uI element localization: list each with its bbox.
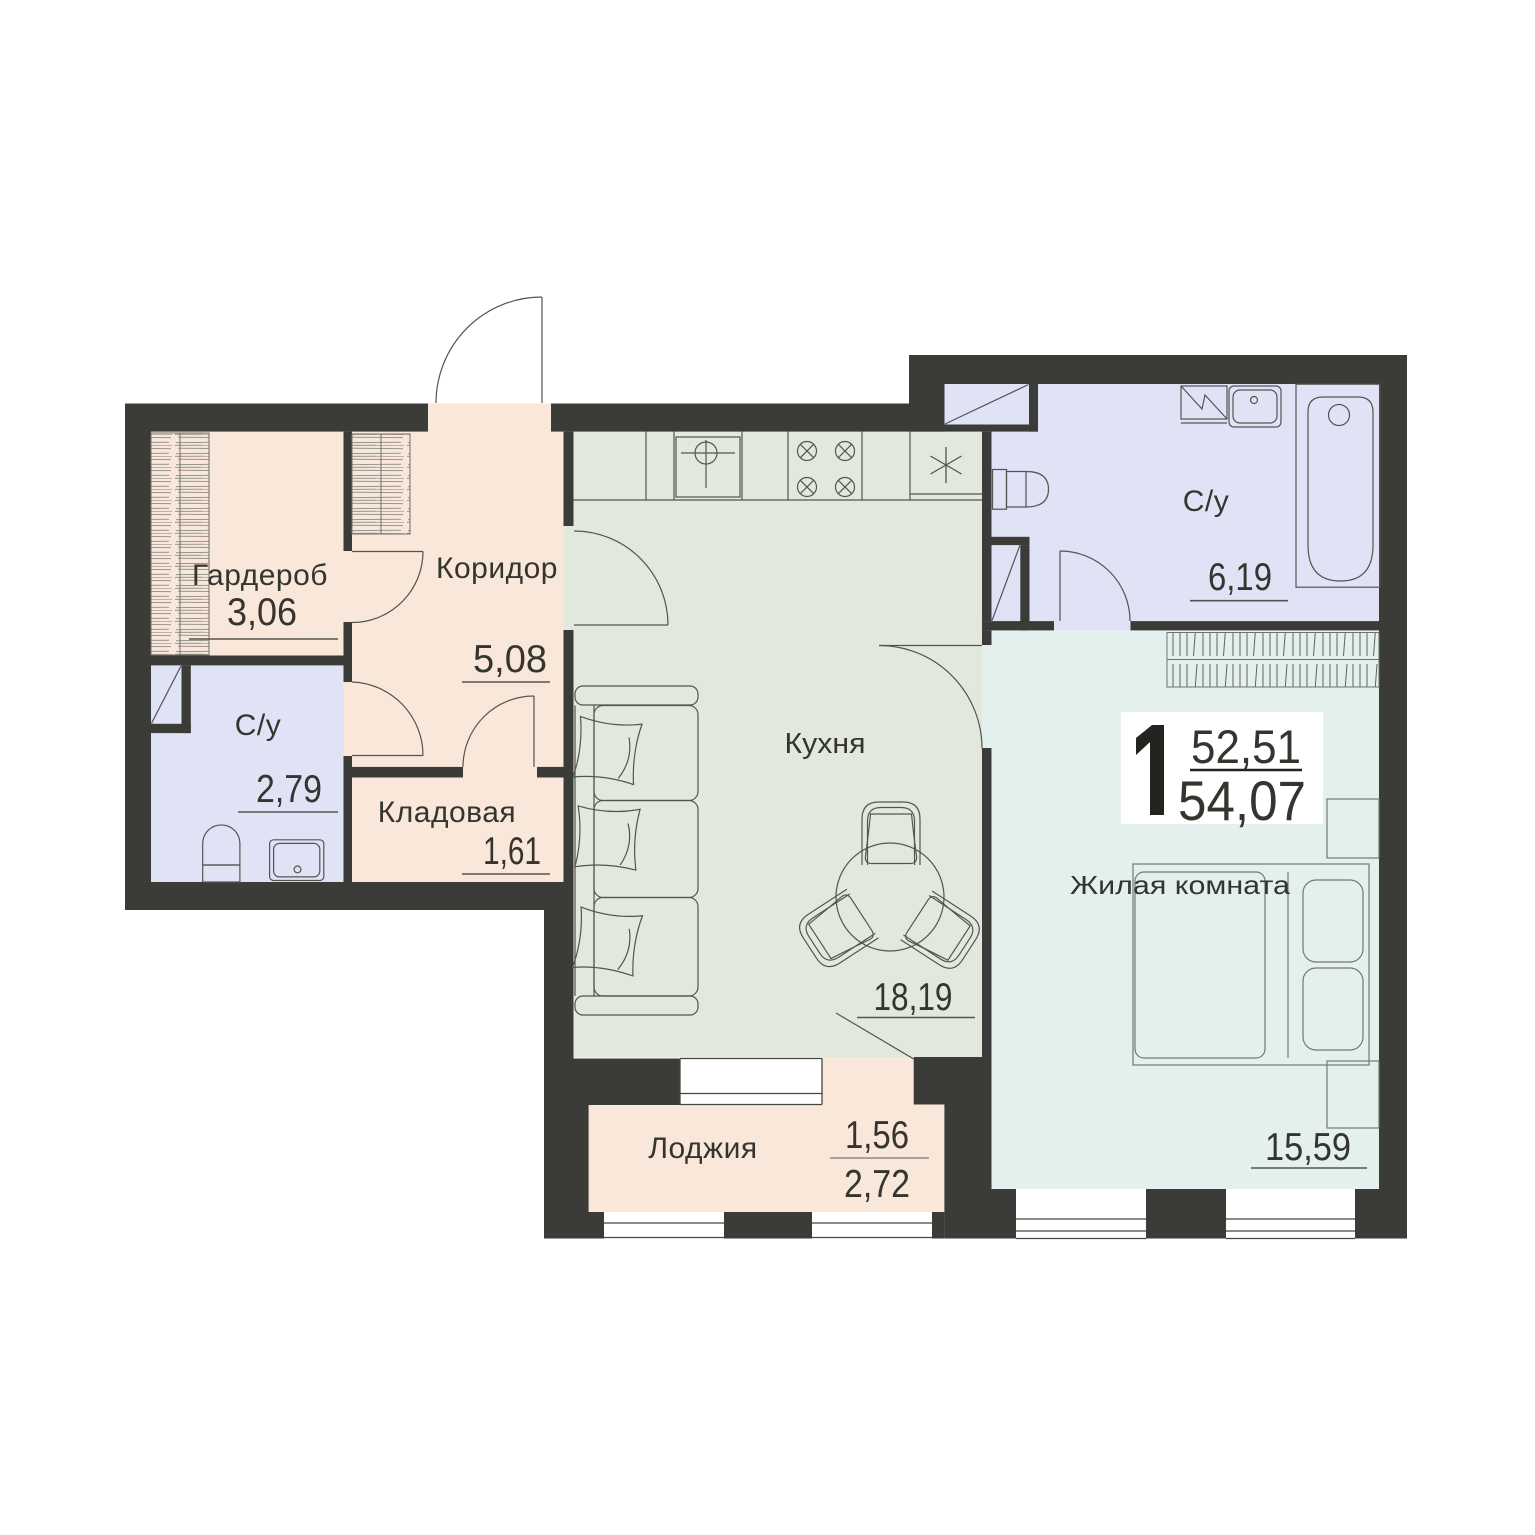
svg-text:3,06: 3,06: [227, 591, 297, 634]
svg-text:2,79: 2,79: [256, 768, 322, 811]
svg-text:Кухня: Кухня: [785, 728, 866, 760]
svg-text:Жилая комната: Жилая комната: [1070, 870, 1291, 900]
svg-text:С/у: С/у: [1183, 485, 1230, 518]
svg-text:1,61: 1,61: [483, 830, 541, 873]
svg-text:Лоджия: Лоджия: [648, 1132, 757, 1165]
svg-text:18,19: 18,19: [874, 976, 953, 1019]
svg-text:15,59: 15,59: [1265, 1126, 1351, 1169]
svg-text:54,07: 54,07: [1178, 769, 1306, 832]
svg-text:Гардероб: Гардероб: [192, 559, 328, 592]
svg-text:2,72: 2,72: [844, 1163, 910, 1206]
svg-text:6,19: 6,19: [1208, 556, 1272, 599]
svg-text:Коридор: Коридор: [436, 552, 558, 585]
svg-text:52,51: 52,51: [1191, 720, 1301, 773]
svg-text:5,08: 5,08: [473, 638, 547, 681]
svg-text:Кладовая: Кладовая: [378, 796, 516, 829]
svg-text:1,56: 1,56: [845, 1114, 909, 1157]
svg-text:С/у: С/у: [235, 709, 282, 742]
